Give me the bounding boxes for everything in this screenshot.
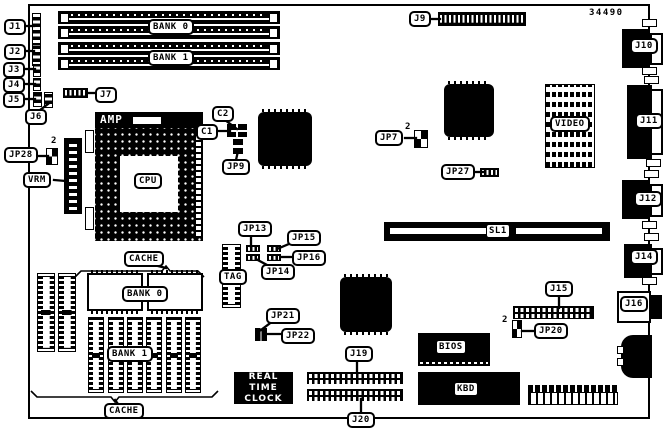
power-connector-teeth [528, 392, 618, 405]
cpu-socket-left-tab-bottom [85, 207, 94, 230]
j15-label: J15 [545, 281, 573, 297]
part-number: 34490 [589, 8, 624, 18]
jp7-label: JP7 [375, 130, 403, 146]
j5-header [33, 92, 42, 107]
amp-brand-label: AMP [100, 114, 123, 126]
jp15-jumper [267, 245, 281, 252]
sl1-slot-left [390, 228, 486, 234]
j7-label: J7 [95, 87, 117, 103]
jp9-label: JP9 [222, 159, 250, 175]
j16-label: J16 [620, 296, 648, 312]
j3-label: J3 [3, 62, 25, 78]
cache-top-label: CACHE [124, 251, 164, 267]
jp28-label: JP28 [4, 147, 38, 163]
power-connector-pins [528, 385, 618, 392]
j1-header [32, 13, 41, 44]
jp13-jumper [246, 245, 260, 252]
real-time-clock-chip: REAL TIME CLOCK [234, 372, 293, 404]
cache-socket-left-1 [37, 273, 55, 352]
j5-label: J5 [3, 92, 25, 108]
j9-connector [438, 12, 526, 26]
cache-socket-left-2 [58, 273, 76, 352]
bank1-socket-5 [166, 317, 182, 393]
j19-header [307, 372, 403, 384]
qfp-chip-top-right [444, 84, 494, 137]
jp7-jumper [414, 130, 428, 148]
vrm-label: VRM [23, 172, 51, 188]
j4-header [33, 78, 41, 91]
qfp-chip-northbridge [258, 112, 312, 166]
jp15-label: JP15 [287, 230, 321, 246]
j11-label: J11 [635, 113, 663, 129]
j9-label: J9 [409, 11, 431, 27]
j6-label: J6 [25, 109, 47, 125]
power-connector [528, 385, 618, 405]
jp14-jumper [246, 254, 260, 261]
jp9-jumper [233, 139, 243, 154]
j20-label: J20 [347, 412, 375, 428]
j12-label: J12 [634, 191, 662, 207]
din-port-tab [617, 346, 624, 354]
jp14-label: JP14 [261, 264, 295, 280]
jp16-label: JP16 [292, 250, 326, 266]
c2-capacitor [238, 124, 247, 137]
rtc-label-line2: CLOCK [234, 394, 293, 405]
kbd-label: KBD [454, 382, 478, 396]
jp20-pin2-marker: 2 [502, 315, 507, 325]
j10-label: J10 [630, 38, 658, 54]
j1-label: J1 [4, 19, 26, 35]
jp7-pin2-marker: 2 [405, 122, 410, 132]
jp13-label: JP13 [238, 221, 272, 237]
cpu-label: CPU [134, 173, 162, 189]
jp20-label: JP20 [534, 323, 568, 339]
jp21-jp22-jumper [255, 328, 267, 341]
port-screw-tab [644, 76, 659, 84]
vrm-socket [64, 138, 82, 214]
video-label: VIDEO [550, 116, 590, 132]
j19-label: J19 [345, 346, 373, 362]
jp21-label: JP21 [266, 308, 300, 324]
port-screw-tab [644, 170, 659, 178]
cache-bank0-label: BANK 0 [122, 286, 168, 302]
jp27-jumper [480, 168, 499, 177]
cpu-amp-bar: AMP [95, 112, 203, 128]
jp27-label: JP27 [441, 164, 475, 180]
port-screw-tab [642, 221, 657, 229]
bank1-socket-1 [88, 317, 104, 393]
bank1-simm-label: BANK 1 [148, 50, 194, 66]
jp28-jumper [46, 148, 58, 165]
cpu-socket-left-tab-top [85, 130, 94, 153]
cpu-socket-right-strip [196, 130, 201, 238]
tag-label: TAG [219, 269, 247, 285]
j20-header [307, 389, 403, 401]
c1-capacitor [227, 124, 236, 137]
port-screw-tab [644, 233, 659, 241]
amp-slot [133, 117, 161, 124]
sl1-slot-right [516, 228, 602, 234]
sl1-label: SL1 [486, 224, 510, 238]
cache-bottom-label: CACHE [104, 403, 144, 419]
cache-bank1-label: BANK 1 [107, 346, 153, 362]
qfp-chip-bottom [340, 277, 392, 332]
j14-label: J14 [630, 249, 658, 265]
jp16-jumper [267, 254, 281, 261]
jp22-label: JP22 [281, 328, 315, 344]
jp20-jumper [512, 320, 522, 338]
j2-label: J2 [4, 44, 26, 60]
jp28-pin2-marker: 2 [51, 136, 56, 146]
port-screw-tab [642, 67, 657, 75]
keyboard-din-port [621, 335, 652, 378]
j2-header [32, 44, 41, 66]
bank0-simm-label: BANK 0 [148, 19, 194, 35]
j3-header [33, 64, 41, 77]
j4-label: J4 [3, 77, 25, 93]
j7-header [63, 88, 88, 98]
motherboard-diagram: 34490 BANK 0 BANK 1 J1 J2 J3 J4 J5 J6 J7… [0, 0, 664, 430]
c2-label: C2 [212, 106, 234, 122]
bank1-socket-6 [185, 317, 201, 393]
din-port-tab [617, 358, 624, 366]
c1-label: C1 [196, 124, 218, 140]
j6-header [44, 92, 53, 108]
rtc-label-line1: REAL TIME [234, 372, 293, 394]
j15-header [513, 306, 594, 319]
port-screw-tab [642, 277, 657, 285]
port-screw-tab [646, 159, 661, 167]
port-screw-tab [642, 19, 657, 27]
bios-label: BIOS [436, 340, 466, 354]
